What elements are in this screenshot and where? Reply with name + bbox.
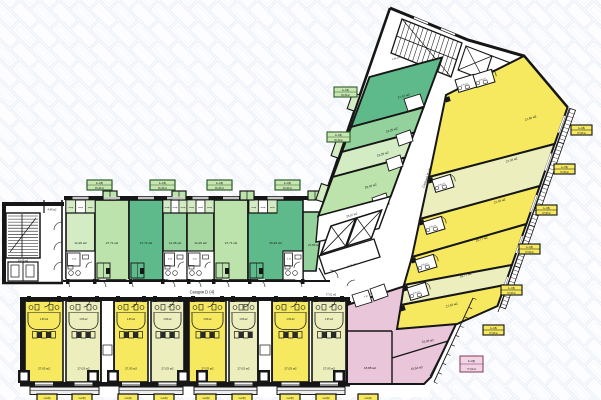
svg-text:1+1(Б): 1+1(Б): [490, 328, 497, 330]
svg-text:45,48 м²: 45,48 м²: [95, 187, 104, 190]
svg-text:45,49 м²: 45,49 м²: [341, 94, 350, 97]
svg-text:27,03 м2: 27,03 м2: [125, 367, 137, 371]
svg-text:1+1(Б): 1+1(Б): [578, 128, 585, 130]
svg-text:37,08 м²: 37,08 м²: [507, 292, 516, 295]
svg-text:шкаф: шкаф: [165, 206, 170, 209]
svg-text:4,95 м2: 4,95 м2: [287, 319, 296, 321]
svg-text:45,48 м²: 45,48 м²: [158, 187, 167, 190]
svg-text:шкаф: шкаф: [251, 206, 256, 209]
svg-text:2+1(Б): 2+1(Б): [342, 90, 349, 92]
svg-text:27,03 м2: 27,03 м2: [323, 367, 335, 371]
svg-text:77,51 м2: 77,51 м2: [326, 293, 337, 297]
svg-text:27,03 м2: 27,03 м2: [201, 367, 213, 371]
svg-text:18,88 м2: 18,88 м2: [364, 366, 376, 370]
svg-text:шкаф: шкаф: [173, 206, 178, 209]
svg-text:45,48 м²: 45,48 м²: [283, 187, 292, 190]
svg-text:шкаф: шкаф: [198, 206, 203, 209]
svg-text:37,08 м²: 37,08 м²: [542, 212, 551, 215]
svg-text:1+1(Б): 1+1(Б): [543, 208, 550, 210]
svg-text:4,95 м2: 4,95 м2: [240, 319, 249, 321]
svg-text:2+1(Б): 2+1(Б): [216, 182, 223, 185]
svg-text:45,48 м²: 45,48 м²: [215, 187, 224, 190]
svg-text:4,48 м2: 4,48 м2: [48, 208, 58, 212]
svg-text:4,95 м2: 4,95 м2: [164, 319, 173, 321]
svg-text:шкаф: шкаф: [207, 206, 212, 209]
svg-text:36,93 м2: 36,93 м2: [269, 241, 282, 245]
svg-text:шкаф: шкаф: [181, 206, 186, 209]
svg-text:2+1(Б): 2+1(Б): [96, 182, 103, 185]
svg-text:27,71 м2: 27,71 м2: [140, 241, 153, 245]
svg-text:37,08 м²: 37,08 м²: [525, 251, 534, 254]
svg-text:27,83 м2: 27,83 м2: [308, 243, 320, 247]
svg-text:3+1(Б): 3+1(Б): [468, 360, 475, 363]
svg-text:77,04 м²: 77,04 м²: [467, 368, 476, 371]
svg-text:4,95 м2: 4,95 м2: [325, 319, 334, 321]
svg-text:шкаф: шкаф: [78, 206, 83, 209]
svg-text:1+1(Б): 1+1(Б): [508, 288, 515, 290]
svg-text:4,95 м2: 4,95 м2: [80, 319, 89, 321]
svg-text:4,95 м2: 4,95 м2: [127, 319, 136, 321]
svg-text:12,26 м2: 12,26 м2: [194, 241, 207, 245]
svg-text:2+1(Б): 2+1(Б): [284, 182, 291, 185]
svg-text:27,03 м2: 27,03 м2: [237, 367, 249, 371]
svg-text:12,26 м2: 12,26 м2: [169, 241, 182, 245]
svg-text:шкаф: шкаф: [88, 206, 93, 209]
svg-text:Секция D (4): Секция D (4): [190, 290, 215, 295]
svg-text:4,95 м2: 4,95 м2: [204, 319, 213, 321]
svg-text:27,71 м2: 27,71 м2: [106, 241, 119, 245]
svg-text:4,95 м2: 4,95 м2: [40, 319, 49, 321]
svg-text:12,26 м2: 12,26 м2: [74, 241, 87, 245]
svg-text:27,03 м2: 27,03 м2: [38, 367, 50, 371]
svg-text:45,49 м²: 45,49 м²: [334, 139, 343, 142]
svg-text:шкаф: шкаф: [270, 206, 275, 209]
svg-text:37,08 м²: 37,08 м²: [577, 132, 586, 135]
svg-text:1+1(Б): 1+1(Б): [526, 247, 533, 249]
svg-text:шкаф: шкаф: [68, 206, 73, 209]
svg-text:37,08 м²: 37,08 м²: [489, 332, 498, 335]
svg-text:2+1(Б): 2+1(Б): [335, 135, 342, 137]
svg-text:шкаф: шкаф: [261, 206, 266, 209]
svg-text:37,08 м²: 37,08 м²: [560, 171, 569, 174]
svg-text:27,71 м2: 27,71 м2: [225, 241, 238, 245]
svg-text:27,03 м2: 27,03 м2: [284, 367, 296, 371]
svg-text:27,03 м2: 27,03 м2: [161, 367, 173, 371]
svg-text:27,03 м2: 27,03 м2: [77, 367, 89, 371]
svg-text:1+1(Б): 1+1(Б): [561, 167, 568, 169]
svg-text:шкаф: шкаф: [189, 206, 194, 209]
svg-text:2+1(Б): 2+1(Б): [159, 182, 166, 185]
